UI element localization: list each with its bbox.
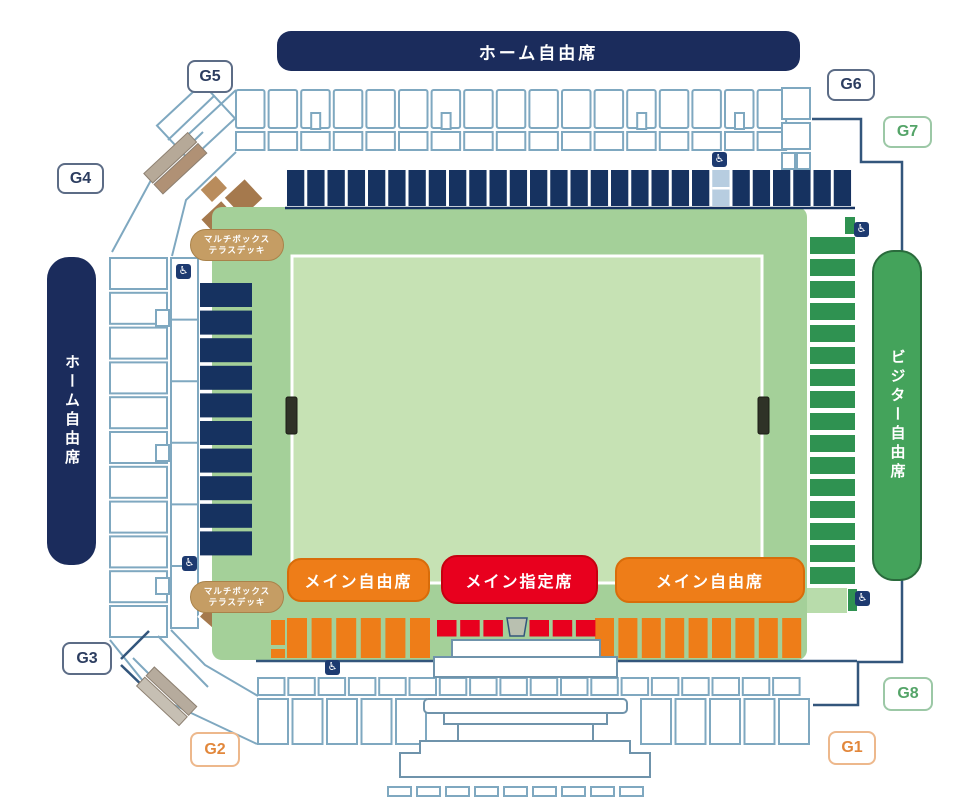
ring-cell: [692, 132, 721, 150]
pill-main-reserved[interactable]: メイン指定席: [441, 555, 598, 604]
ring-cell: [110, 536, 167, 567]
seat-block: [200, 476, 252, 500]
pill-main-free-left[interactable]: メイン自由席: [287, 558, 430, 602]
ring-cell: [676, 699, 706, 744]
ring-cell: [417, 787, 440, 796]
ring-cell: [470, 678, 497, 695]
ring-bottom-walkway: [258, 678, 800, 695]
seat-block: [810, 347, 855, 364]
ring-notch: [156, 445, 169, 461]
ring-cell: [504, 787, 527, 796]
ring-notch: [442, 113, 451, 129]
seat-block: [200, 283, 252, 307]
seat-block: [810, 479, 855, 496]
ring-cell: [432, 132, 461, 150]
ring-cell: [399, 132, 428, 150]
ring-cell: [561, 678, 588, 695]
seat-block: [328, 170, 345, 206]
ring-cell: [497, 90, 526, 128]
ring-cell: [743, 678, 770, 695]
seat-block: [550, 170, 567, 206]
seat-block: [410, 618, 430, 658]
ring-cell: [110, 606, 167, 637]
ring-cell: [388, 787, 411, 796]
seat-block: [469, 170, 486, 206]
ring-cell: [497, 132, 526, 150]
seat-block: [810, 369, 855, 386]
ring-notch: [735, 113, 744, 129]
ring-cell: [531, 678, 558, 695]
back-stand-banner[interactable]: ホーム自由席: [277, 31, 800, 71]
seat-block: [200, 504, 252, 528]
seat-block: [611, 170, 628, 206]
ring-bottom-stand-right: [641, 699, 809, 744]
back-stand-seats[interactable]: [287, 170, 851, 206]
seat-block: [429, 170, 446, 206]
main-free-seats-right[interactable]: [595, 618, 801, 658]
ring-top-walkway: [236, 132, 786, 150]
seat-block: [200, 311, 252, 335]
seat-block: [271, 649, 285, 658]
seat-block: [336, 618, 356, 658]
seat-block: [200, 531, 252, 555]
seat-block: [409, 170, 426, 206]
seat-block: [200, 449, 252, 473]
seat-block: [348, 170, 365, 206]
ring-notch: [311, 113, 320, 129]
seat-block: [810, 413, 855, 430]
ring-top-stand: [236, 90, 786, 129]
ring-cell: [464, 132, 493, 150]
stadium-seating-map: ホーム自由席 ホーム自由席 ビジター自由席 メイン自由席 メイン指定席 メイン自…: [0, 0, 980, 801]
gate-label-g3[interactable]: G3: [62, 642, 112, 675]
ring-cell: [269, 90, 298, 128]
ring-cell: [464, 90, 493, 128]
seat-block: [642, 618, 661, 658]
ring-cell: [595, 132, 624, 150]
ring-cell: [236, 90, 265, 128]
ring-cell: [713, 678, 740, 695]
seat-block: [810, 567, 855, 584]
bottom-ticks: [388, 787, 643, 796]
ring-cell: [110, 328, 167, 359]
seat-block: [307, 170, 324, 206]
seat-block: [361, 618, 381, 658]
ring-cell: [293, 699, 323, 744]
ring-cell: [110, 467, 167, 498]
seat-block: [483, 620, 503, 637]
seat-block: [735, 618, 754, 658]
multibox-line1: マルチボックス: [204, 586, 270, 597]
seat-block: [553, 620, 573, 637]
multibox-line2: テラスデッキ: [209, 245, 266, 256]
ring-top-right-corner: [782, 88, 810, 169]
home-side-banner[interactable]: ホーム自由席: [47, 257, 96, 565]
seat-block: [810, 391, 855, 408]
ring-cell: [258, 699, 288, 744]
ring-cell: [591, 678, 618, 695]
ring-cell: [533, 787, 556, 796]
seat-block: [782, 618, 801, 658]
wheelchair-icon: ♿: [182, 556, 197, 571]
multibox-label-bottom: マルチボックス テラスデッキ: [190, 581, 284, 613]
ring-cell: [500, 678, 527, 695]
ring-cell: [334, 90, 363, 128]
ring-cell: [362, 699, 392, 744]
gate-label-g2[interactable]: G2: [190, 732, 240, 767]
seat-block: [200, 393, 252, 417]
ring-cell: [110, 362, 167, 393]
concourse-step-bottom-right: [807, 588, 847, 613]
gate-label-g1[interactable]: G1: [828, 731, 876, 765]
visitor-side-banner[interactable]: ビジター自由席: [872, 250, 922, 581]
seat-block: [689, 618, 708, 658]
seat-block: [618, 618, 637, 658]
ring-cell: [622, 678, 649, 695]
wheelchair-icon: ♿: [855, 591, 870, 606]
seat-block: [810, 435, 855, 452]
seat-block: [793, 170, 810, 206]
ring-cell: [110, 397, 167, 428]
seat-block: [733, 170, 750, 206]
ring-cell: [349, 678, 376, 695]
ring-cell: [327, 699, 357, 744]
ring-cell: [236, 132, 265, 150]
seat-block: [753, 170, 770, 206]
gate-label-g6[interactable]: G6: [827, 69, 875, 101]
seat-divider: [712, 187, 729, 190]
seat-block: [287, 170, 304, 206]
ring-cell: [399, 90, 428, 128]
ring-cell: [110, 258, 167, 289]
ring-cell: [410, 678, 437, 695]
wheelchair-icon: ♿: [712, 152, 727, 167]
ring-cell: [446, 787, 469, 796]
seat-block: [200, 338, 252, 362]
seat-block: [631, 170, 648, 206]
ring-cell: [627, 132, 656, 150]
wheelchair-icon: ♿: [176, 264, 191, 279]
ring-cell: [366, 90, 395, 128]
seat-block: [200, 366, 252, 390]
ring-cell: [660, 132, 689, 150]
ring-cell: [773, 678, 800, 695]
goal-left: [286, 397, 297, 434]
ring-cell: [396, 699, 426, 744]
ring-cell: [319, 678, 346, 695]
ring-cell: [710, 699, 740, 744]
seat-block: [712, 618, 731, 658]
seat-block: [652, 170, 669, 206]
main-stand-structure: [400, 640, 650, 777]
seat-block: [810, 457, 855, 474]
ring-cell: [529, 132, 558, 150]
ring-cell: [562, 787, 585, 796]
ring-bottom-stand-left: [258, 699, 426, 744]
multibox-line1: マルチボックス: [204, 234, 270, 245]
ring-cell: [595, 90, 624, 128]
pitch: [292, 256, 762, 583]
ring-cell: [591, 787, 614, 796]
gate-label-g7[interactable]: G7: [883, 116, 932, 148]
stairs-bottom-left: [137, 667, 197, 726]
seat-block: [437, 620, 457, 637]
ring-cell: [529, 90, 558, 128]
ring-cell: [258, 678, 285, 695]
seat-block: [368, 170, 385, 206]
seat-block: [200, 421, 252, 445]
ring-cell: [440, 678, 467, 695]
seat-block: [490, 170, 507, 206]
ring-cell: [779, 699, 809, 744]
gate-label-g8[interactable]: G8: [883, 677, 933, 711]
multibox-label-top: マルチボックス テラスデッキ: [190, 229, 284, 261]
stadium-map-svg: [0, 0, 980, 801]
ring-cell: [725, 132, 754, 150]
seat-block: [692, 170, 709, 206]
seat-block: [810, 501, 855, 518]
seat-block: [810, 281, 855, 298]
seat-block: [576, 620, 596, 637]
seat-block: [460, 620, 480, 637]
seat-block: [271, 620, 285, 645]
seat-block: [312, 618, 332, 658]
seat-block: [510, 170, 527, 206]
ring-cell: [379, 678, 406, 695]
ring-cell: [562, 90, 591, 128]
wheelchair-icon: ♿: [325, 660, 340, 675]
seat-block: [810, 523, 855, 540]
seat-block: [773, 170, 790, 206]
ring-cell: [745, 699, 775, 744]
ring-cell: [110, 502, 167, 533]
seat-block: [834, 170, 851, 206]
seat-block: [814, 170, 831, 206]
goal-right: [758, 397, 769, 434]
players-tunnel: [507, 618, 527, 636]
seat-block: [449, 170, 466, 206]
seat-block: [385, 618, 405, 658]
gate-label-g4[interactable]: G4: [57, 163, 104, 194]
seat-block: [571, 170, 588, 206]
ring-cell: [334, 132, 363, 150]
ring-notch: [637, 113, 646, 129]
ring-cell: [562, 132, 591, 150]
seat-block: [810, 237, 855, 254]
ring-cell: [660, 90, 689, 128]
ring-notch: [156, 310, 169, 326]
seat-block: [665, 618, 684, 658]
seat-block: [810, 545, 855, 562]
ring-cell: [301, 132, 330, 150]
pill-main-free-right[interactable]: メイン自由席: [615, 557, 805, 603]
ring-notch: [156, 578, 169, 594]
ring-cell: [641, 699, 671, 744]
seat-block: [287, 618, 307, 658]
seat-block: [530, 620, 550, 637]
ring-cell: [288, 678, 315, 695]
ring-cell: [620, 787, 643, 796]
seat-block: [759, 618, 778, 658]
seat-block: [810, 303, 855, 320]
ring-cell: [652, 678, 679, 695]
wheelchair-icon: ♿: [854, 222, 869, 237]
seat-block: [388, 170, 405, 206]
seat-block: [530, 170, 547, 206]
stairs-top-left: [144, 133, 207, 194]
seat-block: [591, 170, 608, 206]
ring-cell: [475, 787, 498, 796]
seat-block: [810, 259, 855, 276]
seat-block: [810, 325, 855, 342]
gate-label-g5[interactable]: G5: [187, 60, 233, 93]
ring-cell: [269, 132, 298, 150]
multibox-line2: テラスデッキ: [209, 597, 266, 608]
ring-cell: [682, 678, 709, 695]
visitor-side-seats[interactable]: [810, 237, 855, 584]
ring-cell: [692, 90, 721, 128]
ring-cell: [366, 132, 395, 150]
seat-block: [672, 170, 689, 206]
